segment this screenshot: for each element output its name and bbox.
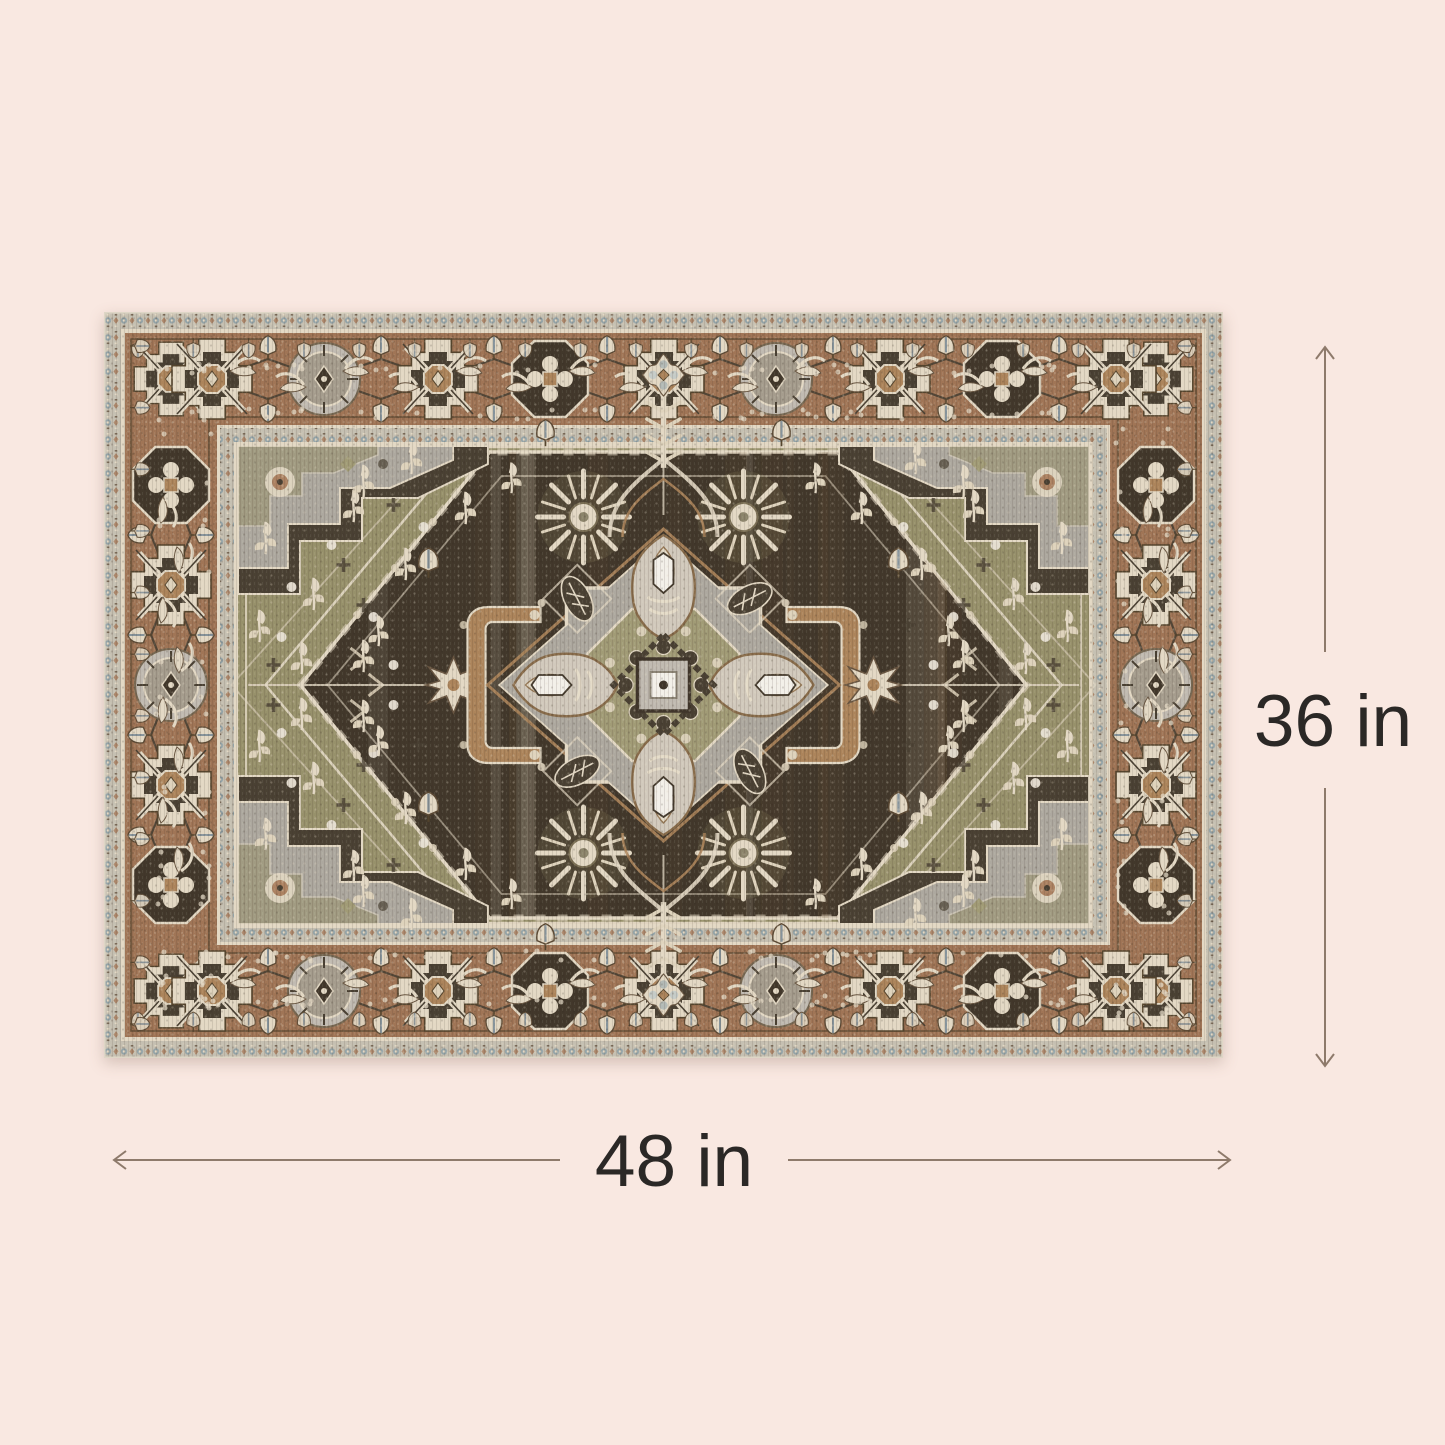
svg-text:48 in: 48 in (595, 1121, 753, 1202)
svg-text:36 in: 36 in (1254, 681, 1412, 762)
